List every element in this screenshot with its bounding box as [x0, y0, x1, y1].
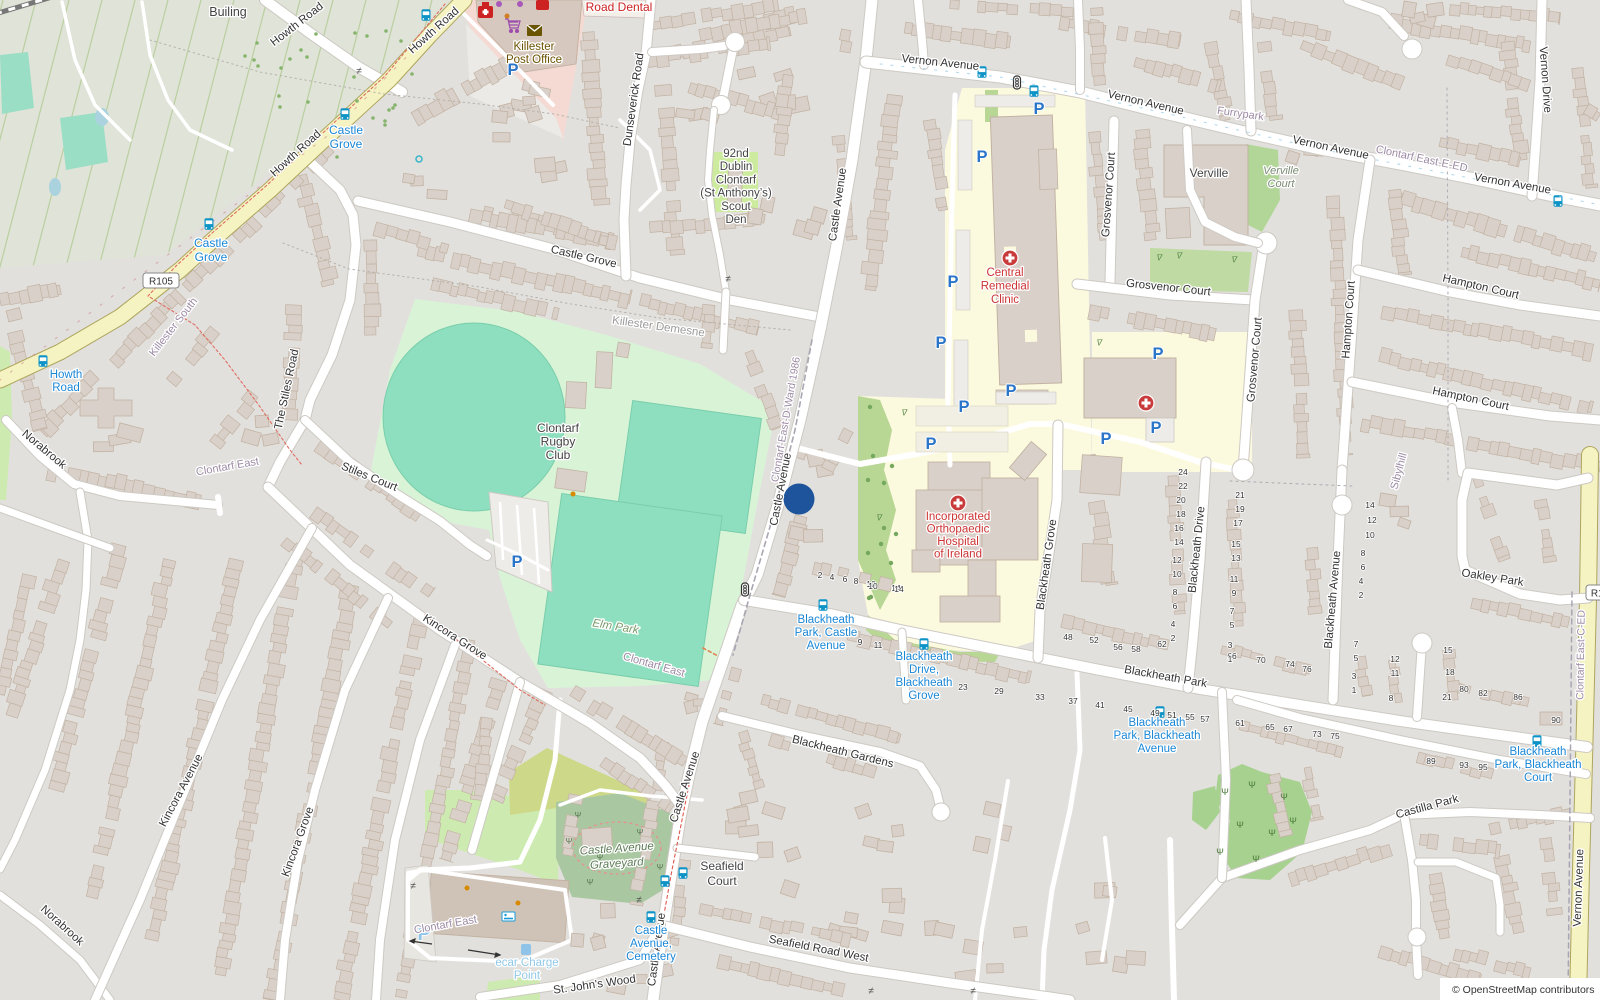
svg-text:Ψ: Ψ: [637, 828, 644, 837]
svg-text:≠: ≠: [410, 881, 416, 892]
svg-text:P: P: [1152, 345, 1163, 363]
svg-text:52: 52: [1089, 635, 1099, 645]
svg-text:65: 65: [1265, 722, 1275, 732]
svg-text:≠: ≠: [970, 986, 976, 997]
svg-text:Grove: Grove: [195, 250, 228, 264]
svg-text:Remedial: Remedial: [981, 281, 1030, 293]
svg-text:P: P: [947, 273, 958, 291]
svg-text:23: 23: [958, 682, 968, 692]
svg-text:48: 48: [1063, 632, 1073, 642]
svg-text:𝛻: 𝛻: [1232, 255, 1238, 264]
svg-text:7: 7: [1354, 639, 1359, 649]
svg-text:56: 56: [1113, 642, 1123, 652]
svg-text:Seafield: Seafield: [700, 859, 743, 873]
svg-text:3: 3: [1228, 640, 1233, 650]
svg-text:17: 17: [1233, 518, 1243, 528]
svg-text:22: 22: [1178, 481, 1188, 491]
svg-text:Dublin: Dublin: [720, 161, 753, 173]
svg-text:18: 18: [1445, 667, 1455, 677]
svg-text:16: 16: [1174, 523, 1184, 533]
svg-text:Park, Castle: Park, Castle: [795, 627, 858, 639]
svg-text:Road: Road: [52, 382, 80, 394]
svg-text:Ψ: Ψ: [1236, 820, 1244, 830]
svg-text:3: 3: [1352, 671, 1357, 681]
svg-text:P: P: [925, 435, 936, 453]
svg-text:Orthopaedic: Orthopaedic: [927, 524, 990, 536]
svg-text:R105: R105: [149, 277, 173, 288]
svg-text:21: 21: [1235, 490, 1245, 500]
svg-text:Incorporated: Incorporated: [926, 511, 991, 523]
svg-text:58: 58: [1131, 644, 1141, 654]
svg-text:76: 76: [1302, 664, 1312, 674]
svg-text:4: 4: [830, 572, 835, 582]
svg-text:Clontarf East-C-ED: Clontarf East-C-ED: [1574, 610, 1588, 700]
svg-text:29: 29: [994, 686, 1004, 696]
svg-text:12: 12: [1172, 555, 1182, 565]
svg-text:Post Office: Post Office: [506, 54, 562, 66]
svg-text:Howth: Howth: [50, 369, 83, 381]
svg-text:(St Anthony’s): (St Anthony’s): [700, 188, 772, 200]
svg-text:Point: Point: [514, 970, 541, 982]
svg-text:5: 5: [1354, 653, 1359, 663]
svg-text:Den: Den: [725, 214, 746, 226]
svg-text:15: 15: [1443, 645, 1453, 655]
svg-text:Avenue: Avenue: [807, 640, 846, 652]
svg-text:R10: R10: [1591, 589, 1600, 600]
svg-text:Ψ: Ψ: [1268, 828, 1276, 838]
svg-text:2: 2: [1171, 633, 1176, 643]
svg-text:Avenue,: Avenue,: [630, 938, 672, 950]
svg-text:9: 9: [1232, 588, 1237, 598]
svg-text:92nd: 92nd: [723, 148, 749, 160]
svg-text:70: 70: [1256, 655, 1266, 665]
svg-text:11: 11: [1230, 574, 1239, 584]
svg-text:P: P: [976, 148, 987, 166]
svg-text:≠: ≠: [636, 895, 642, 906]
svg-text:Ψ: Ψ: [1216, 847, 1224, 857]
svg-text:14: 14: [1174, 537, 1184, 547]
svg-text:61: 61: [1235, 718, 1245, 728]
svg-text:P: P: [511, 553, 522, 571]
svg-text:Blackheath: Blackheath: [1510, 746, 1567, 758]
svg-text:82: 82: [1478, 688, 1488, 698]
svg-text:Castle: Castle: [329, 123, 363, 137]
svg-text:Road Dental: Road Dental: [586, 0, 653, 14]
svg-text:© OpenStreetMap contributors: © OpenStreetMap contributors: [1452, 984, 1595, 996]
svg-text:P: P: [1150, 419, 1161, 437]
svg-text:Killester: Killester: [514, 41, 555, 53]
svg-text:Club: Club: [546, 448, 571, 462]
svg-text:67: 67: [1283, 724, 1293, 734]
svg-text:12: 12: [1367, 515, 1377, 525]
svg-text:Grove: Grove: [330, 137, 363, 151]
svg-text:𝛻: 𝛻: [1097, 338, 1103, 347]
svg-text:Court: Court: [1524, 772, 1553, 784]
svg-text:9: 9: [858, 637, 863, 647]
svg-text:Cemetery: Cemetery: [626, 951, 676, 963]
svg-text:95: 95: [1478, 762, 1488, 772]
svg-text:8: 8: [854, 576, 859, 586]
svg-text:Castle: Castle: [194, 236, 228, 250]
svg-text:Rugby: Rugby: [541, 435, 576, 449]
svg-text:57: 57: [1200, 714, 1210, 724]
svg-text:11: 11: [1391, 668, 1400, 678]
svg-text:11: 11: [874, 640, 883, 650]
svg-text:73: 73: [1312, 729, 1322, 739]
svg-text:1: 1: [1228, 654, 1233, 664]
svg-text:80: 80: [1459, 684, 1469, 694]
svg-text:Ψ: Ψ: [1252, 854, 1260, 864]
svg-text:Grove: Grove: [908, 690, 939, 702]
svg-text:𝛻: 𝛻: [902, 408, 908, 417]
svg-text:62: 62: [1157, 639, 1167, 649]
svg-text:P: P: [1100, 430, 1111, 448]
svg-text:Court: Court: [1268, 178, 1296, 190]
svg-text:≠: ≠: [725, 274, 731, 285]
svg-text:Castle: Castle: [635, 925, 668, 937]
svg-text:1: 1: [1352, 685, 1357, 695]
svg-text:Ψ: Ψ: [1221, 787, 1229, 797]
svg-text:55: 55: [1185, 712, 1195, 722]
svg-text:Ψ: Ψ: [1289, 816, 1297, 826]
svg-text:Drive,: Drive,: [909, 664, 939, 676]
svg-text:33: 33: [1035, 692, 1045, 702]
svg-text:𝛻: 𝛻: [1157, 253, 1163, 262]
svg-text:19: 19: [1235, 504, 1245, 514]
svg-text:2: 2: [818, 570, 823, 580]
svg-text:90: 90: [1551, 715, 1561, 725]
svg-text:21: 21: [1442, 692, 1452, 702]
svg-text:20: 20: [1176, 495, 1186, 505]
svg-text:13: 13: [1231, 553, 1241, 563]
svg-text:Central: Central: [986, 267, 1023, 279]
svg-text:86: 86: [1513, 692, 1523, 702]
svg-text:10: 10: [868, 581, 878, 591]
svg-text:4: 4: [1359, 576, 1364, 586]
svg-text:89: 89: [1426, 756, 1436, 766]
svg-text:6: 6: [843, 574, 848, 584]
svg-text:Avenue: Avenue: [1138, 743, 1177, 755]
svg-text:14: 14: [894, 584, 904, 594]
svg-text:Hospital: Hospital: [937, 536, 979, 548]
svg-text:51: 51: [1167, 710, 1177, 720]
svg-text:≠: ≠: [868, 986, 874, 997]
svg-text:18: 18: [1176, 509, 1186, 519]
svg-text:Ψ: Ψ: [1248, 780, 1256, 790]
svg-text:15: 15: [1231, 539, 1241, 549]
svg-text:Ψ: Ψ: [566, 837, 573, 846]
svg-text:41: 41: [1095, 700, 1105, 710]
svg-text:49: 49: [1150, 708, 1160, 718]
svg-text:2: 2: [1359, 590, 1364, 600]
svg-text:24: 24: [1178, 467, 1188, 477]
svg-text:P: P: [958, 398, 969, 416]
svg-text:10: 10: [1365, 530, 1375, 540]
svg-text:P: P: [1005, 382, 1016, 400]
svg-text:Ψ: Ψ: [1280, 792, 1288, 802]
svg-text:Clontarf: Clontarf: [537, 421, 580, 435]
svg-text:Builing: Builing: [209, 5, 247, 19]
svg-text:4: 4: [1171, 619, 1176, 629]
svg-text:Ψ: Ψ: [587, 878, 594, 887]
svg-text:𝛻: 𝛻: [877, 513, 883, 522]
svg-text:Park, Blackheath: Park, Blackheath: [1114, 730, 1201, 742]
svg-text:7: 7: [1230, 606, 1235, 616]
svg-text:6: 6: [1173, 601, 1178, 611]
svg-text:Clinic: Clinic: [991, 294, 1019, 306]
svg-text:Scout: Scout: [721, 201, 751, 213]
svg-text:Blackheath: Blackheath: [896, 651, 953, 663]
svg-text:10: 10: [1172, 569, 1182, 579]
svg-text:Ψ: Ψ: [657, 863, 664, 872]
svg-text:6: 6: [1361, 562, 1366, 572]
svg-text:P: P: [935, 334, 946, 352]
svg-text:37: 37: [1068, 696, 1078, 706]
svg-text:Blackheath: Blackheath: [1129, 717, 1186, 729]
svg-text:93: 93: [1459, 760, 1469, 770]
svg-text:75: 75: [1330, 731, 1340, 741]
svg-text:P: P: [1033, 100, 1044, 118]
svg-text:Ψ: Ψ: [575, 811, 582, 820]
svg-text:5: 5: [1230, 620, 1235, 630]
svg-text:74: 74: [1285, 659, 1295, 669]
svg-text:𝛻: 𝛻: [1177, 251, 1183, 260]
svg-text:14: 14: [1365, 500, 1375, 510]
svg-text:8: 8: [1173, 587, 1178, 597]
svg-text:≠: ≠: [356, 66, 362, 77]
svg-text:8: 8: [1389, 693, 1394, 703]
svg-text:Park, Blackheath: Park, Blackheath: [1495, 759, 1582, 771]
svg-text:Blackheath: Blackheath: [798, 614, 855, 626]
svg-text:Verville: Verville: [1263, 165, 1299, 177]
svg-text:Verville: Verville: [1190, 166, 1229, 180]
svg-text:Clontarf: Clontarf: [716, 174, 757, 186]
svg-text:45: 45: [1123, 704, 1133, 714]
svg-text:Court: Court: [707, 874, 737, 888]
svg-text:12: 12: [1390, 654, 1400, 664]
svg-text:of Ireland: of Ireland: [934, 549, 982, 561]
svg-text:8: 8: [1361, 548, 1366, 558]
svg-text:ecar Charge: ecar Charge: [495, 957, 558, 969]
svg-text:Blackheath: Blackheath: [896, 677, 953, 689]
